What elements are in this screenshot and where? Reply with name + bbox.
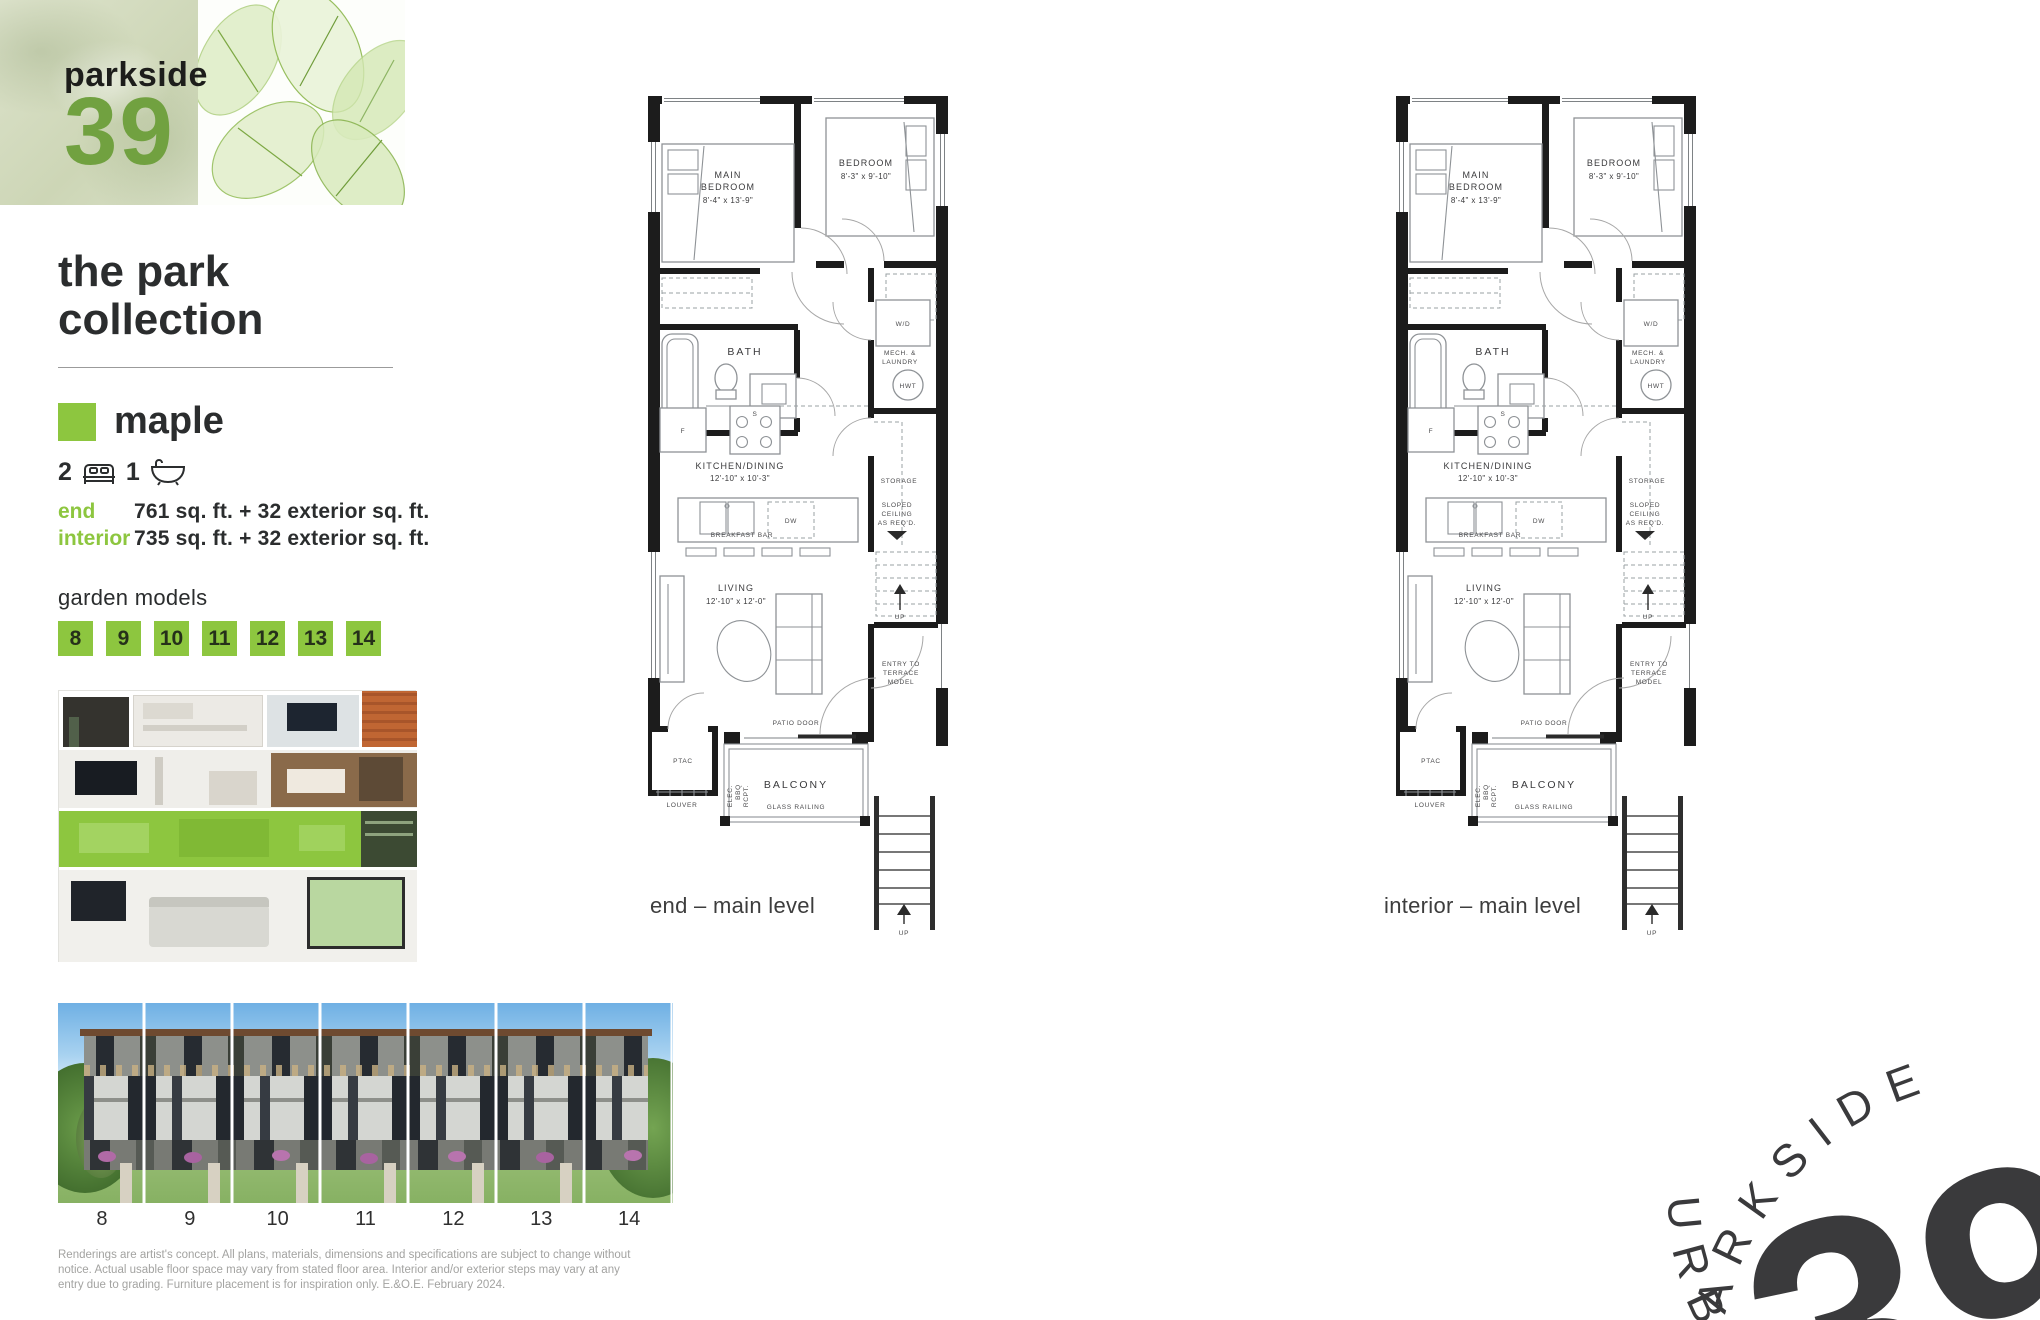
floorplan-drawing: MAIN BEDROOM 8'-4" x 13'-9" BEDROOM 8'-3…: [648, 78, 948, 938]
label-elec-3: RCPT.: [1491, 785, 1498, 807]
label-entry-3: MODEL: [888, 679, 915, 686]
unit-number-8: 8: [58, 1208, 146, 1231]
label-balcony: BALCONY: [764, 779, 828, 791]
logo-block: parkside 39: [0, 0, 405, 205]
garden-model-14: 14: [346, 621, 381, 656]
label-stove: S: [1500, 411, 1505, 418]
label-sloped-3: AS REQ'D.: [878, 520, 917, 527]
label-bath: BATH: [1475, 346, 1510, 358]
street-unit-numbers: 8 9 10 11 12 13 14: [58, 1208, 673, 1231]
label-fridge: F: [1429, 428, 1434, 435]
label-dw: DW: [1533, 518, 1545, 525]
building-section-image: [58, 690, 416, 962]
label-dw: DW: [785, 518, 797, 525]
label-patio-door: PATIO DOOR: [1521, 720, 1568, 727]
label-bedroom: BEDROOM: [1587, 158, 1641, 168]
label-hwt: HWT: [900, 383, 917, 390]
watermark: PARKSIDE URBAN 39: [1610, 930, 2040, 1320]
label-elec-2: BBQ: [735, 784, 742, 800]
garden-model-13: 13: [298, 621, 333, 656]
label-kitchen: KITCHEN/DINING: [1444, 461, 1533, 471]
label-entry-2: TERRACE: [883, 670, 919, 677]
bed-bath-row: 2 1: [58, 458, 186, 487]
label-storage: STORAGE: [1629, 478, 1666, 485]
bath-count: 1: [126, 458, 140, 487]
garden-model-8: 8: [58, 621, 93, 656]
label-hwt: HWT: [1648, 383, 1665, 390]
label-living-dim: 12'-10" x 12'-0": [1454, 597, 1514, 606]
label-ptac: PTAC: [673, 758, 693, 765]
label-entry-1: ENTRY TO: [882, 661, 920, 668]
label-sloped-1: SLOPED: [882, 502, 913, 509]
bed-icon: [82, 460, 116, 486]
label-glass-railing: GLASS RAILING: [767, 804, 826, 811]
spec-end: end 761 sq. ft. + 32 exterior sq. ft.: [58, 498, 429, 525]
unit-number-10: 10: [234, 1208, 322, 1231]
unit-number-14: 14: [585, 1208, 673, 1231]
label-elec-3: RCPT.: [743, 785, 750, 807]
model-color-swatch: [58, 403, 96, 441]
divider-rule: [58, 367, 393, 368]
spec-list: end 761 sq. ft. + 32 exterior sq. ft. in…: [58, 498, 429, 552]
label-mech-1: MECH. &: [1632, 350, 1664, 357]
label-ptac: PTAC: [1421, 758, 1441, 765]
label-elec-1: ELEC.: [1475, 785, 1482, 807]
leaves-image: [198, 0, 405, 205]
label-sloped-2: CEILING: [882, 511, 913, 518]
label-main-bedroom-2: BEDROOM: [701, 182, 755, 192]
logo: parkside 39: [64, 58, 208, 180]
label-bedroom-dim: 8'-3" x 9'-10": [1589, 172, 1639, 181]
title-line-1: the park: [58, 248, 263, 296]
label-main-bedroom-dim: 8'-4" x 13'-9": [1451, 196, 1501, 205]
label-sloped-2: CEILING: [1630, 511, 1661, 518]
floorplan-end-caption: end – main level: [650, 893, 815, 919]
spec-interior: interior 735 sq. ft. + 32 exterior sq. f…: [58, 525, 429, 552]
label-mech-2: LAUNDRY: [1630, 359, 1666, 366]
logo-number: 39: [64, 84, 208, 180]
label-up-interior: UP: [1643, 614, 1653, 621]
unit-number-11: 11: [322, 1208, 410, 1231]
label-up-exterior: UP: [899, 930, 909, 937]
garden-model-12: 12: [250, 621, 285, 656]
spec-interior-value: 735 sq. ft. + 32 exterior sq. ft.: [134, 525, 429, 552]
garden-model-11: 11: [202, 621, 237, 656]
spec-interior-label: interior: [58, 525, 134, 552]
unit-divider-lines: [58, 1003, 673, 1203]
floorplan-drawing: MAIN BEDROOM 8'-4" x 13'-9" BEDROOM 8'-3…: [1396, 78, 1696, 938]
label-entry-3: MODEL: [1636, 679, 1663, 686]
label-bedroom-dim: 8'-3" x 9'-10": [841, 172, 891, 181]
label-living: LIVING: [1466, 583, 1502, 593]
label-breakfast-bar: BREAKFAST BAR: [711, 532, 773, 539]
label-main-bedroom-1: MAIN: [1463, 170, 1490, 180]
label-living-dim: 12'-10" x 12'-0": [706, 597, 766, 606]
label-main-bedroom-dim: 8'-4" x 13'-9": [703, 196, 753, 205]
label-entry-2: TERRACE: [1631, 670, 1667, 677]
label-louver: LOUVER: [667, 802, 698, 809]
model-name: maple: [114, 400, 224, 443]
unit-number-9: 9: [146, 1208, 234, 1231]
label-stove: S: [752, 411, 757, 418]
label-kitchen-dim: 12'-10" x 10'-3": [1458, 474, 1518, 483]
label-glass-railing: GLASS RAILING: [1515, 804, 1574, 811]
label-sloped-3: AS REQ'D.: [1626, 520, 1665, 527]
label-balcony: BALCONY: [1512, 779, 1576, 791]
label-storage: STORAGE: [881, 478, 918, 485]
label-sloped-1: SLOPED: [1630, 502, 1661, 509]
label-living: LIVING: [718, 583, 754, 593]
label-bedroom: BEDROOM: [839, 158, 893, 168]
page-title: the park collection: [58, 248, 263, 344]
unit-number-13: 13: [497, 1208, 585, 1231]
label-main-bedroom-2: BEDROOM: [1449, 182, 1503, 192]
spec-end-label: end: [58, 498, 134, 525]
unit-number-12: 12: [409, 1208, 497, 1231]
label-fridge: F: [681, 428, 686, 435]
label-patio-door: PATIO DOOR: [773, 720, 820, 727]
floorplan-interior: MAIN BEDROOM 8'-4" x 13'-9" BEDROOM 8'-3…: [1396, 78, 1696, 938]
disclaimer-text: Renderings are artist's concept. All pla…: [58, 1248, 648, 1293]
street-rendering-image: [58, 1003, 673, 1203]
spec-end-value: 761 sq. ft. + 32 exterior sq. ft.: [134, 498, 429, 525]
label-breakfast-bar: BREAKFAST BAR: [1459, 532, 1521, 539]
floorplan-end: MAIN BEDROOM 8'-4" x 13'-9" BEDROOM 8'-3…: [648, 78, 948, 938]
garden-model-9: 9: [106, 621, 141, 656]
label-elec-2: BBQ: [1483, 784, 1490, 800]
label-entry-1: ENTRY TO: [1630, 661, 1668, 668]
label-mech-1: MECH. &: [884, 350, 916, 357]
garden-models-label: garden models: [58, 585, 207, 611]
label-kitchen: KITCHEN/DINING: [696, 461, 785, 471]
label-up-interior: UP: [895, 614, 905, 621]
bed-count: 2: [58, 458, 72, 487]
label-wd: W/D: [896, 321, 911, 328]
garden-models-row: 8 9 10 11 12 13 14: [58, 621, 381, 656]
label-louver: LOUVER: [1415, 802, 1446, 809]
label-elec-1: ELEC.: [727, 785, 734, 807]
model-row: maple: [58, 400, 224, 443]
label-wd: W/D: [1644, 321, 1659, 328]
bath-icon: [150, 459, 186, 486]
garden-model-10: 10: [154, 621, 189, 656]
brochure-page: parkside 39 the park collection maple 2 …: [0, 0, 2040, 1320]
title-line-2: collection: [58, 296, 263, 344]
floorplan-interior-caption: interior – main level: [1384, 893, 1581, 919]
label-mech-2: LAUNDRY: [882, 359, 918, 366]
label-main-bedroom-1: MAIN: [715, 170, 742, 180]
label-bath: BATH: [727, 346, 762, 358]
label-kitchen-dim: 12'-10" x 10'-3": [710, 474, 770, 483]
